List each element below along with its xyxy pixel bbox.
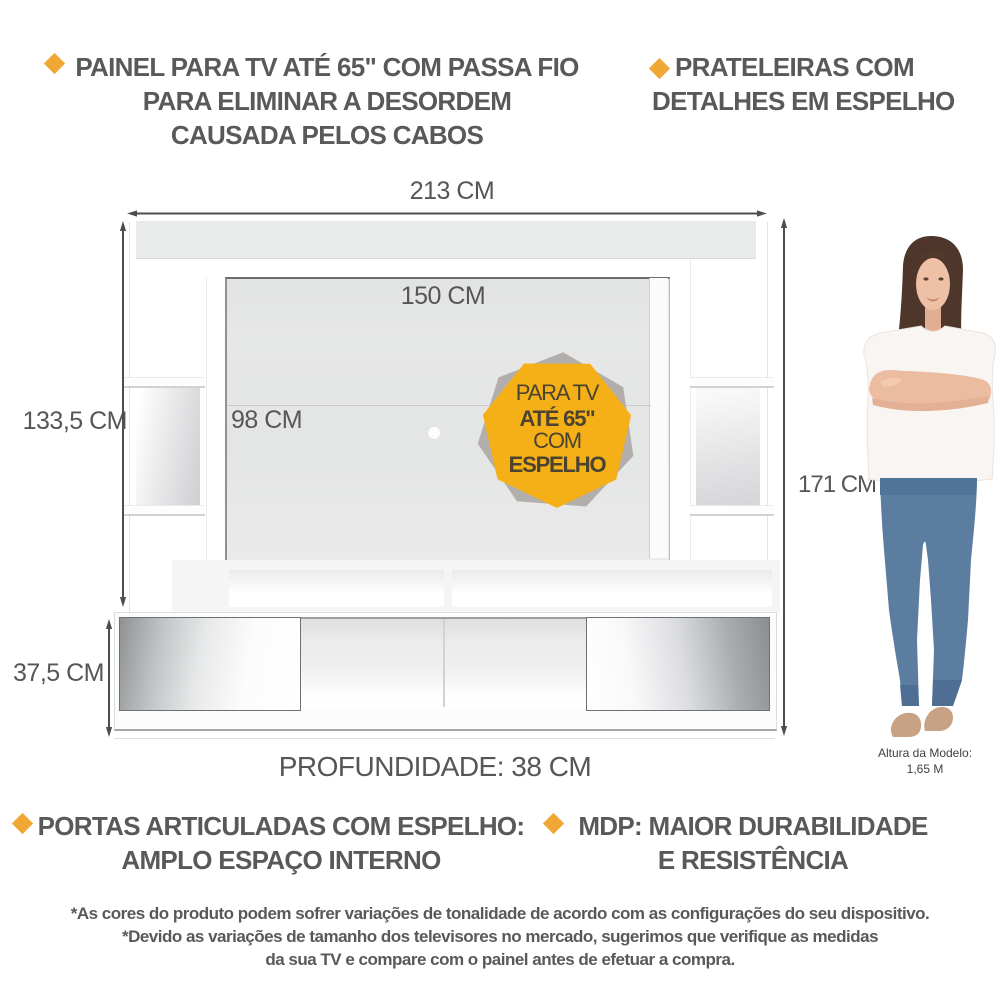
svg-text:COM: COM — [533, 428, 581, 453]
svg-text:PARA TV: PARA TV — [516, 380, 600, 405]
svg-text:ESPELHO: ESPELHO — [509, 452, 607, 477]
